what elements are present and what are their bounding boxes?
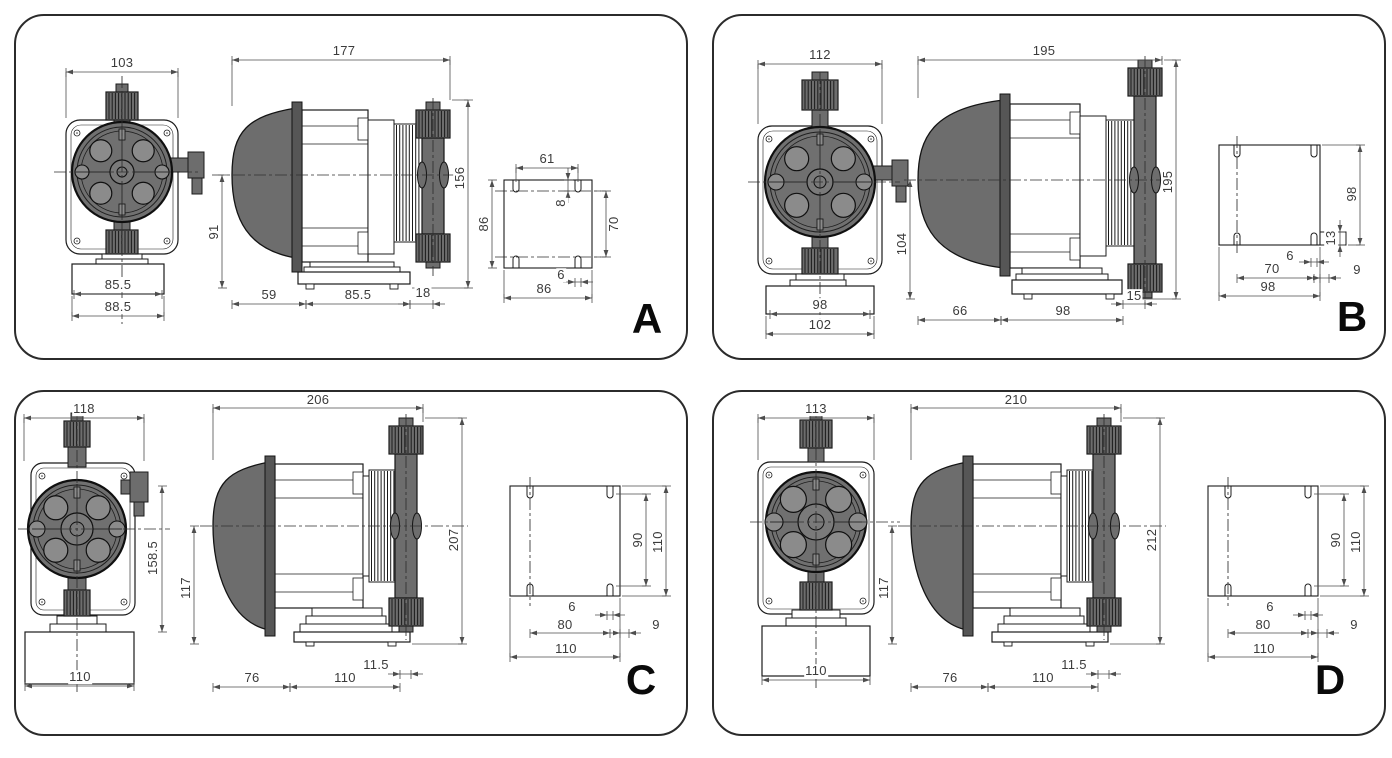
dim-label-side-height-right: 207 xyxy=(447,528,461,553)
dim-label-front-top-width: 112 xyxy=(808,48,832,62)
dim-label-front-base-width: 110 xyxy=(68,670,92,684)
dim-label-side-top-width: 177 xyxy=(332,44,357,58)
dim-label-bracket-slot-width: 6 xyxy=(556,268,566,282)
front-view xyxy=(748,72,908,328)
dim-label-bracket-height-right: 110 xyxy=(651,530,665,554)
dim-label-side-height-left: 117 xyxy=(877,576,891,600)
panel-a: 10385.588.5177156915985.5186188670686A xyxy=(14,14,688,360)
dim-label-bracket-hole-spacing-bottom: 70 xyxy=(1263,262,1280,276)
dim-label-bracket-side-offset: 9 xyxy=(1352,263,1362,277)
dim-label-bracket-bottom-width: 98 xyxy=(1259,280,1276,294)
panel-letter-a: A xyxy=(632,298,662,340)
dim-label-side-bottom-segments-0: 59 xyxy=(260,288,277,302)
dim-label-side-bottom-segments-0: 66 xyxy=(951,304,968,318)
dim-label-bracket-top-width: 61 xyxy=(538,152,555,166)
dim-label-side-top-width: 206 xyxy=(306,393,331,407)
dim-label-front-base-width-outer: 88.5 xyxy=(104,300,133,314)
dim-label-side-bottom-segments-1: 85.5 xyxy=(344,288,373,302)
dim-label-front-base-width: 110 xyxy=(804,664,828,678)
dim-label-front-top-width: 118 xyxy=(72,402,96,416)
dim-label-bracket-hole-spacing-right: 90 xyxy=(1329,531,1343,548)
panel-b: 112981021951951046698159813670998B xyxy=(712,14,1386,360)
bracket-view xyxy=(1208,477,1318,606)
dim-label-side-bottom-segments-1: 110 xyxy=(1031,671,1055,685)
dim-label-side-bottom-segments-2: 15 xyxy=(1125,289,1142,303)
panel-letter-c: C xyxy=(626,659,656,701)
drawing-sheet: 10385.588.5177156915985.5186188670686A 1… xyxy=(0,0,1392,736)
front-view xyxy=(750,406,900,688)
dim-label-side-height-right: 212 xyxy=(1145,528,1159,553)
dim-label-front-base-width-inner: 98 xyxy=(811,298,828,312)
panel-letter-b: B xyxy=(1337,296,1367,338)
dim-label-bracket-bottom-width: 110 xyxy=(554,642,578,656)
dim-label-side-height-right: 156 xyxy=(453,166,467,191)
dim-label-bracket-bottom-width: 86 xyxy=(535,282,552,296)
dim-label-side-height-left: 104 xyxy=(895,232,909,257)
dim-label-bracket-slot-width: 6 xyxy=(567,600,577,614)
dim-label-bracket-hole-spacing-bottom: 80 xyxy=(556,618,573,632)
dim-label-side-height-left: 117 xyxy=(179,576,193,600)
bracket-view xyxy=(510,477,620,606)
dim-label-side-top-width: 195 xyxy=(1032,44,1057,58)
dim-label-side-bottom-segments-1: 98 xyxy=(1054,304,1071,318)
dim-label-bracket-step-height: 13 xyxy=(1324,229,1338,246)
dim-label-front-top-width: 113 xyxy=(804,402,828,416)
dim-label-side-height-right: 195 xyxy=(1161,170,1175,195)
dim-label-bracket-hole-spacing-bottom: 80 xyxy=(1254,618,1271,632)
dim-label-bracket-side-offset: 9 xyxy=(651,618,661,632)
dim-label-front-base-width-inner: 85.5 xyxy=(104,278,133,292)
dim-label-front-top-width: 103 xyxy=(110,56,135,70)
dim-label-side-bottom-segments-2: 11.5 xyxy=(1060,658,1088,672)
dim-label-bracket-hole-spacing-right: 70 xyxy=(607,215,621,232)
side-view xyxy=(898,414,1166,646)
bracket-view xyxy=(495,180,601,268)
dim-label-side-bottom-segments-1: 110 xyxy=(333,671,357,685)
dim-label-side-top-width: 210 xyxy=(1004,393,1029,407)
dim-label-bracket-height-left: 86 xyxy=(477,215,491,232)
dim-label-bracket-height-right: 98 xyxy=(1345,185,1359,202)
dim-label-bracket-slot-width: 6 xyxy=(1265,600,1275,614)
panel-d: 1131102102121177611011.5901106809110D xyxy=(712,390,1386,736)
dim-label-front-height-right: 158.5 xyxy=(146,540,160,576)
dim-label-bracket-bottom-width: 110 xyxy=(1252,642,1276,656)
panel-c: 118158.51102062071177611011.590110680911… xyxy=(14,390,688,736)
dim-label-bracket-side-offset: 9 xyxy=(1349,618,1359,632)
side-view xyxy=(904,56,1170,306)
dim-label-bracket-slot-offset: 8 xyxy=(554,198,568,208)
dim-label-side-bottom-segments-0: 76 xyxy=(941,671,958,685)
dim-label-side-height-left: 91 xyxy=(207,223,221,240)
panel-letter-d: D xyxy=(1315,659,1345,701)
dim-label-side-bottom-segments-0: 76 xyxy=(243,671,260,685)
dim-label-side-bottom-segments-2: 18 xyxy=(414,286,431,300)
dim-label-bracket-slot-width: 6 xyxy=(1285,249,1295,263)
side-view xyxy=(212,98,462,289)
dim-label-bracket-height-right: 110 xyxy=(1349,530,1363,554)
dim-label-side-bottom-segments-2: 11.5 xyxy=(362,658,390,672)
dim-label-bracket-hole-spacing-right: 90 xyxy=(631,531,645,548)
side-view xyxy=(200,414,468,646)
dim-label-front-base-width-outer: 102 xyxy=(808,318,833,332)
